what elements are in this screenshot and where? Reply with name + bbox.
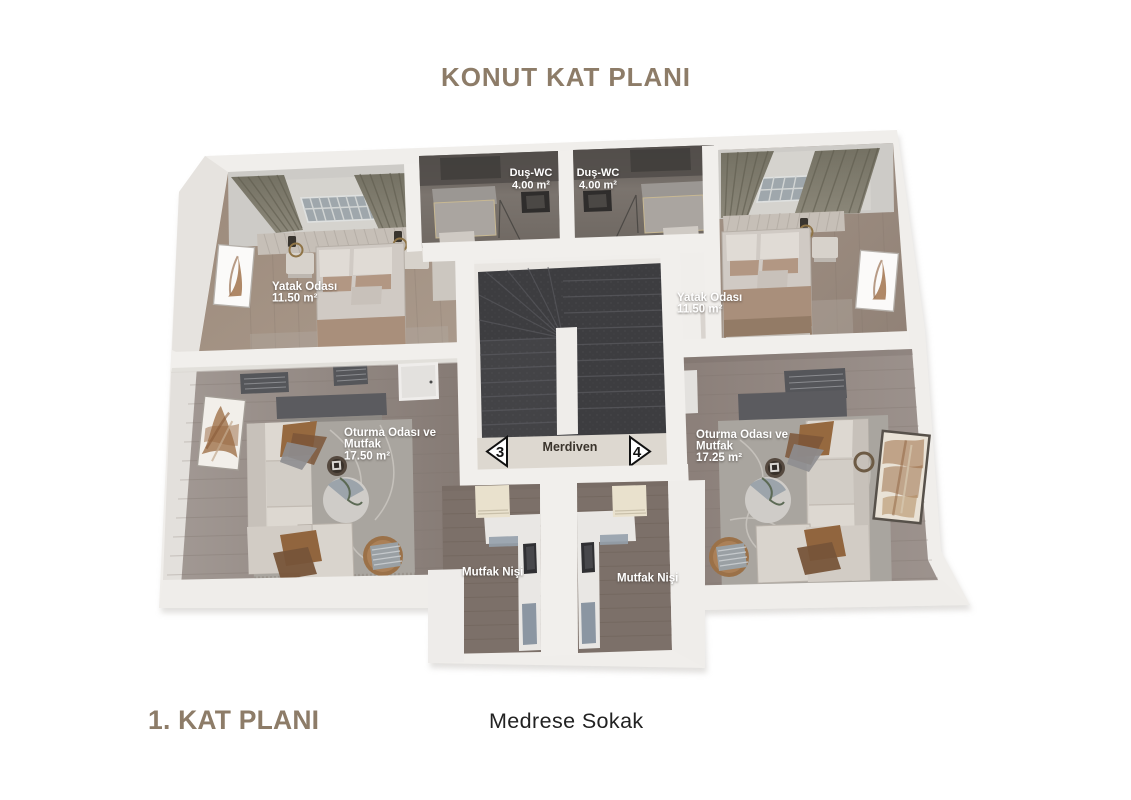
svg-text:3: 3 (496, 444, 504, 461)
svg-text:Yatak Odası: Yatak Odası (677, 292, 742, 304)
svg-text:Merdiven: Merdiven (543, 440, 598, 454)
svg-text:4.00 m²: 4.00 m² (579, 180, 617, 192)
svg-text:4: 4 (633, 444, 642, 461)
svg-text:17.50 m²: 17.50 m² (344, 451, 390, 463)
svg-text:Medrese Sokak: Medrese Sokak (489, 709, 644, 733)
svg-text:1. KAT PLANI: 1. KAT PLANI (148, 705, 319, 735)
svg-text:Mutfak: Mutfak (344, 439, 382, 451)
svg-text:4.00 m²: 4.00 m² (512, 180, 550, 192)
svg-text:Oturma Odası ve: Oturma Odası ve (344, 427, 436, 439)
svg-text:11.50 m²: 11.50 m² (272, 293, 318, 305)
svg-text:Mutfak Nişi: Mutfak Nişi (617, 573, 678, 585)
svg-text:KONUT KAT PLANI: KONUT KAT PLANI (441, 62, 691, 92)
svg-text:Mutfak: Mutfak (696, 441, 734, 453)
svg-text:Duş-WC: Duş-WC (577, 167, 620, 179)
svg-text:17.25 m²: 17.25 m² (696, 452, 742, 464)
svg-text:Duş-WC: Duş-WC (510, 167, 553, 179)
svg-text:11.50 m²: 11.50 m² (677, 304, 723, 316)
svg-text:Yatak Odası: Yatak Odası (272, 281, 337, 293)
svg-text:Mutfak Nişi: Mutfak Nişi (462, 567, 523, 579)
svg-text:Oturma Odası ve: Oturma Odası ve (696, 429, 788, 441)
